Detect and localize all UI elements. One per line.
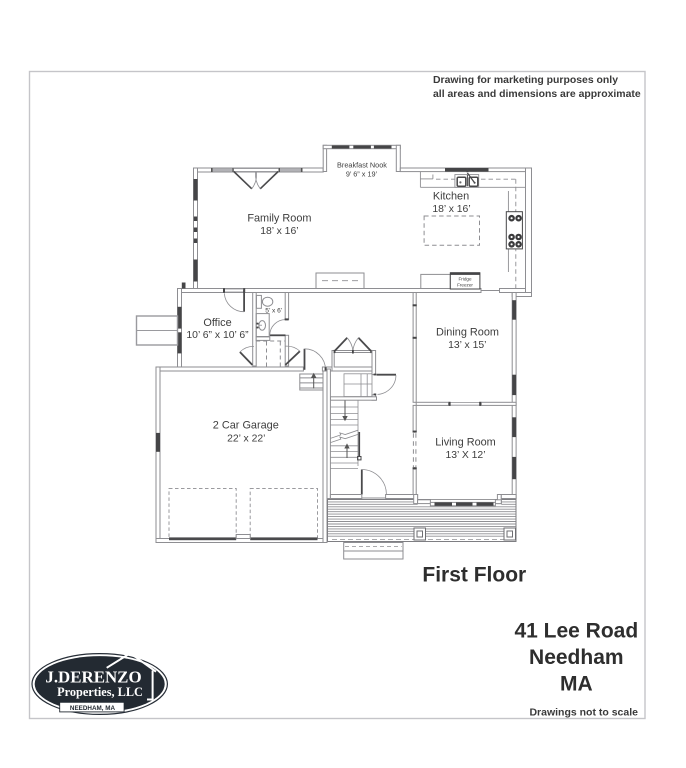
- svg-text:Needham: Needham: [529, 646, 624, 669]
- svg-text:Fridge: Fridge: [458, 277, 471, 282]
- svg-text:5’ x 6’: 5’ x 6’: [265, 308, 283, 315]
- svg-text:22’ x 22’: 22’ x 22’: [227, 434, 265, 445]
- svg-text:10’ 6” x 10’ 6”: 10’ 6” x 10’ 6”: [186, 330, 249, 341]
- svg-text:Freezer: Freezer: [457, 283, 473, 288]
- svg-text:Office: Office: [203, 317, 231, 329]
- svg-text:18’ x 16’: 18’ x 16’: [432, 204, 470, 215]
- svg-text:Breakfast Nook: Breakfast Nook: [337, 161, 387, 170]
- svg-text:all areas and dimensions are a: all areas and dimensions are approximate: [433, 89, 641, 100]
- svg-text:Dining Room: Dining Room: [436, 326, 499, 338]
- svg-text:13’ x 15’: 13’ x 15’: [448, 340, 486, 351]
- svg-text:First Floor: First Floor: [422, 564, 526, 587]
- svg-text:Drawing for marketing purposes: Drawing for marketing purposes only: [433, 75, 618, 86]
- svg-text:2 Car Garage: 2 Car Garage: [213, 420, 279, 432]
- svg-text:18’ x 16’: 18’ x 16’: [260, 226, 298, 237]
- svg-text:Kitchen: Kitchen: [433, 191, 469, 203]
- svg-text:NEEDHAM, MA: NEEDHAM, MA: [70, 705, 116, 712]
- svg-text:Properties, LLC: Properties, LLC: [57, 685, 143, 699]
- svg-text:Drawings not to scale: Drawings not to scale: [529, 707, 638, 719]
- svg-text:9’ 6” x 19’: 9’ 6” x 19’: [346, 170, 378, 179]
- svg-text:J.DERENZO: J.DERENZO: [45, 668, 141, 687]
- svg-text:Family Room: Family Room: [247, 213, 311, 225]
- svg-text:Living Room: Living Room: [435, 436, 496, 448]
- svg-text:MA: MA: [560, 672, 593, 695]
- svg-text:13’ X 12’: 13’ X 12’: [445, 450, 485, 461]
- svg-text:41 Lee Road: 41 Lee Road: [514, 620, 638, 643]
